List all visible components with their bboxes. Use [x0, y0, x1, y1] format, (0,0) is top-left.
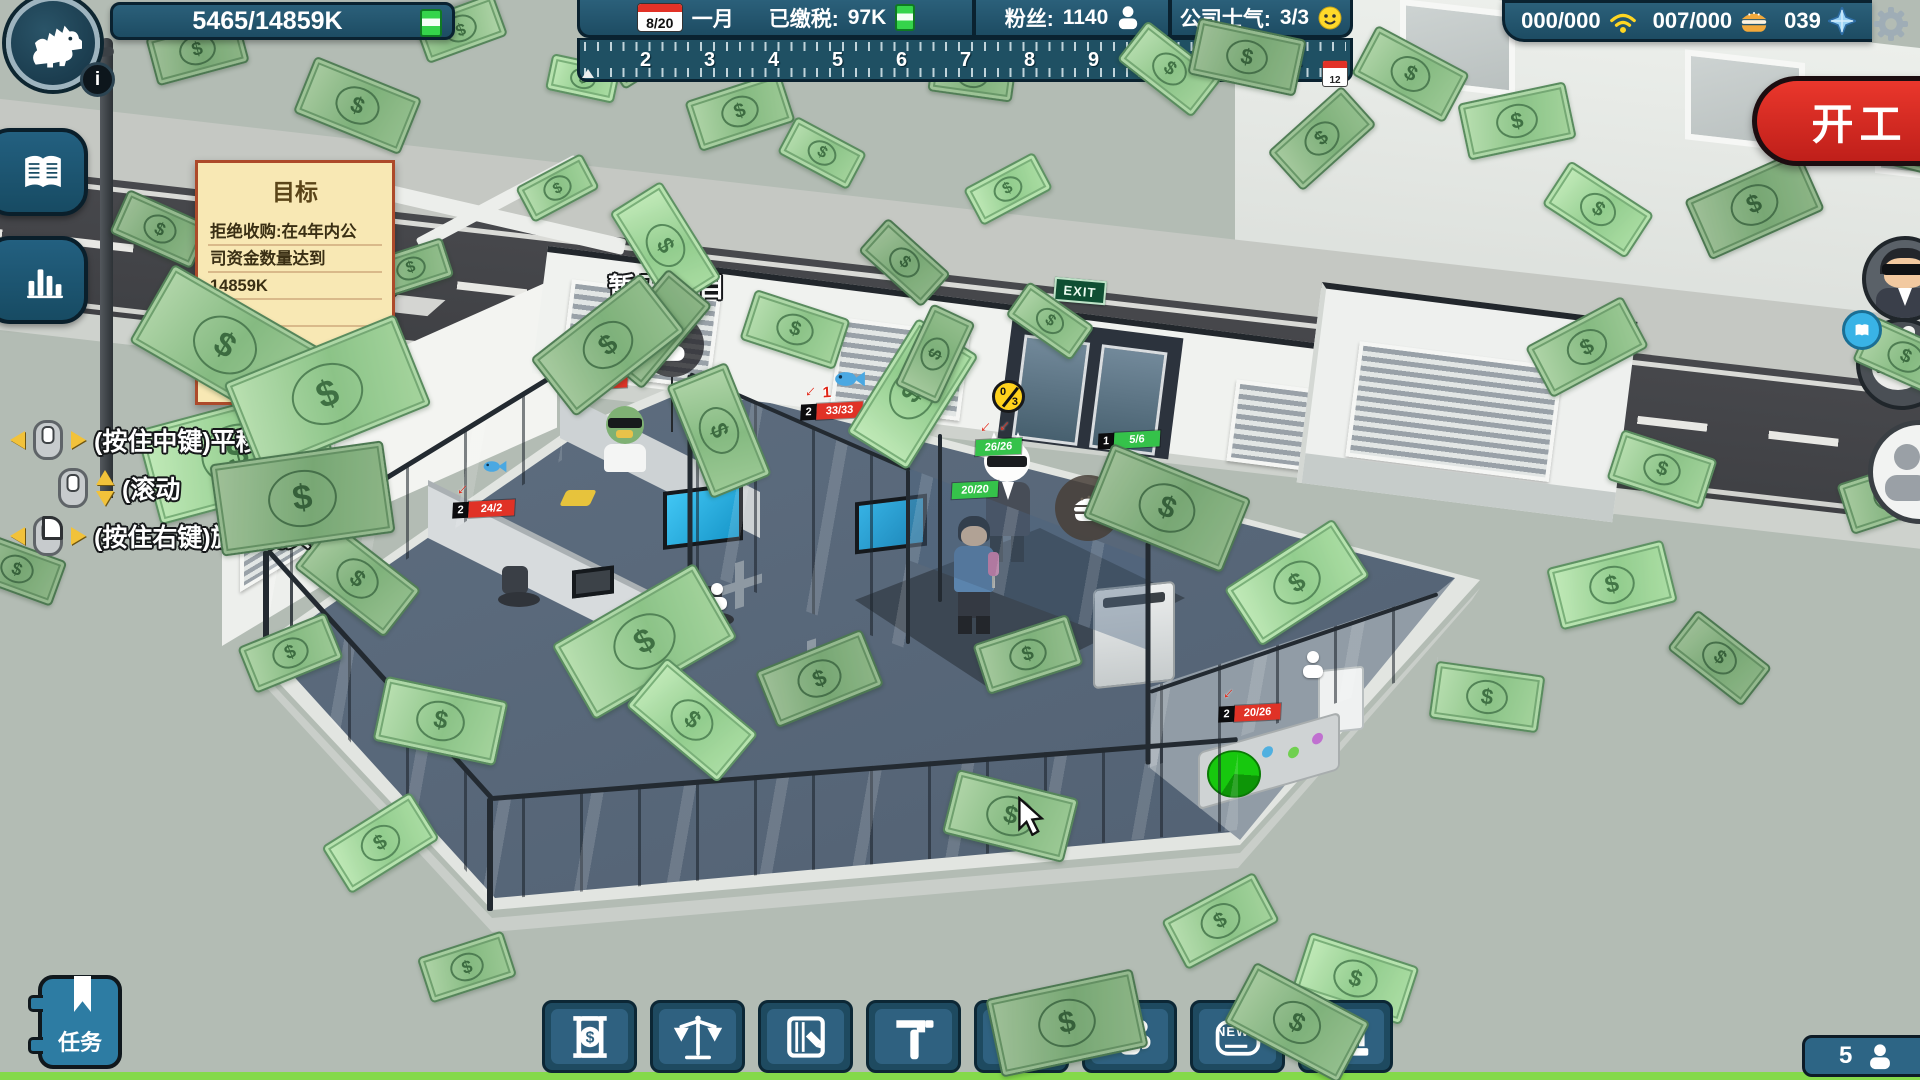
toolbar-button-legal[interactable]	[650, 1000, 745, 1073]
add-person-icon	[1881, 439, 1920, 503]
hp-bar: →→26/26	[974, 417, 1022, 456]
hammer-icon	[888, 1011, 940, 1063]
window-blinds	[1345, 341, 1563, 482]
arrow-down-icon	[96, 491, 114, 506]
structure-beam	[938, 434, 942, 602]
staff-count-value: 5	[1839, 1042, 1852, 1070]
wifi-icon	[1608, 8, 1638, 35]
arrow-left-icon	[10, 431, 25, 449]
structure-beam	[906, 470, 910, 644]
hp-bar: 20/20	[952, 481, 999, 499]
ruler-tick: 6	[896, 49, 907, 72]
gem-value: 039	[1784, 8, 1821, 34]
timeline-calendar-marker: 12	[1322, 60, 1348, 87]
ruler-tick: 2	[640, 49, 651, 72]
hp-bar: →220/26	[1217, 682, 1281, 722]
mouse-middle-icon	[33, 420, 63, 460]
marker-day: 12	[1329, 75, 1340, 86]
level-badge: 2	[452, 502, 469, 519]
month-label: 一月	[692, 3, 734, 33]
timeline-playhead[interactable]	[582, 69, 594, 78]
energy-max: 3	[1012, 396, 1018, 408]
morale-value: 3/3	[1280, 6, 1309, 30]
goal-title: 目标	[210, 173, 380, 207]
whiteboard-pencil-icon	[780, 1011, 832, 1063]
damage-arrow-icon: →	[451, 478, 477, 504]
employee-duck[interactable]	[598, 406, 652, 478]
bookmark-icon	[74, 976, 91, 1012]
hint-zoom: (滚动	[58, 468, 180, 508]
mouse-right-icon	[33, 516, 63, 556]
start-work-label: 开工	[1811, 91, 1907, 152]
company-funds-display: 5465/14859K	[110, 2, 455, 40]
mouse-cursor	[1012, 796, 1048, 836]
ruler-tick: 3	[704, 49, 715, 72]
dinosaur-icon	[24, 17, 82, 69]
hp-bar: 15/6	[1098, 430, 1161, 449]
start-work-button[interactable]: 开工	[1752, 76, 1920, 166]
fans-label: 粉丝:	[1005, 3, 1054, 33]
game-viewport: EXIT	[0, 0, 1920, 1080]
date-tax-panel: 8/20 一月 已缴税: 97K	[580, 0, 972, 35]
level-badge: 2	[1218, 706, 1235, 723]
person-icon	[1117, 5, 1139, 30]
damage-arrow-icon: →	[993, 415, 1019, 441]
hp-value: 24/2	[468, 499, 515, 517]
tax-value: 97K	[848, 6, 887, 30]
ruler-tick: 9	[1088, 49, 1099, 72]
arrow-up-icon	[96, 470, 114, 485]
arrow-right-icon	[71, 431, 86, 449]
structure-beam	[487, 798, 493, 911]
energy-badge: 0 3	[992, 380, 1025, 413]
fans-value: 1140	[1063, 6, 1109, 30]
calendar-icon: 8/20	[637, 3, 683, 32]
mouse-wheel-icon	[58, 468, 88, 508]
training-badge	[1842, 310, 1882, 350]
funds-battery-icon	[420, 9, 442, 37]
book-icon	[18, 150, 68, 194]
fish-icon	[482, 458, 508, 475]
arrow-left-icon	[10, 527, 25, 545]
bottom-green-strip	[0, 1072, 1920, 1080]
ruler-tick: 7	[960, 49, 971, 72]
toolbar-button-build[interactable]	[866, 1000, 961, 1073]
structure-beam	[1146, 543, 1151, 765]
laptop	[572, 565, 614, 598]
goal-line: 拒绝收购:在4年内公	[210, 219, 380, 246]
wifi-value: 000/000	[1521, 8, 1601, 34]
goal-line: 司资金数量达到	[210, 246, 380, 273]
tasks-label: 任务	[42, 1025, 118, 1057]
money-printer-icon: $	[564, 1011, 616, 1063]
gear-icon	[1873, 6, 1909, 42]
hp-value: 20/26	[1234, 703, 1281, 721]
energy-current: 0	[1000, 386, 1006, 398]
ruler-tick: 8	[1024, 49, 1035, 72]
calendar-day: 8/20	[646, 15, 673, 31]
bar-chart-icon	[22, 259, 68, 301]
goal-text: 拒绝收购:在4年内公 司资金数量达到 14859K	[210, 219, 380, 300]
scales-icon	[672, 1011, 724, 1063]
person-icon	[1868, 1043, 1892, 1070]
hp-value: 20/20	[952, 481, 999, 499]
level-badge: 2	[800, 404, 817, 421]
settings-button[interactable]	[1872, 5, 1910, 43]
hint-zoom-text: (滚动	[122, 470, 180, 506]
hp-bar: →224/2	[451, 478, 515, 518]
food-value: 007/000	[1653, 8, 1733, 34]
goal-line: 14859K	[210, 273, 380, 300]
tax-battery-icon	[895, 4, 915, 31]
tasks-button[interactable]: 任务	[38, 975, 122, 1069]
svg-text:$: $	[585, 1029, 594, 1046]
toolbar-button-planning[interactable]	[758, 1000, 853, 1073]
gem-star-icon	[1828, 7, 1856, 35]
stats-button[interactable]	[0, 236, 88, 324]
exit-sign: EXIT	[1053, 277, 1107, 305]
handbook-button[interactable]	[0, 128, 88, 216]
staff-count-display[interactable]: 5	[1802, 1035, 1920, 1077]
hp-value: 26/26	[975, 438, 1022, 456]
info-button[interactable]: i	[80, 62, 115, 97]
tax-label: 已缴税:	[769, 3, 839, 33]
hp-bar: →1233/33	[799, 380, 863, 420]
book-icon	[1853, 322, 1871, 338]
funds-value: 5465/14859K	[192, 7, 342, 36]
resource-bar: 000/000 007/000 039	[1502, 0, 1872, 42]
smiley-icon	[1318, 6, 1342, 30]
arrow-right-icon	[71, 527, 86, 545]
burger-icon	[1739, 8, 1769, 34]
toolbar-button-finance[interactable]: $	[542, 1000, 637, 1073]
ruler-tick: 5	[832, 49, 843, 72]
damage-arrow-icon: →	[1217, 682, 1243, 708]
info-label: i	[95, 69, 100, 91]
ruler-tick: 4	[768, 49, 779, 72]
